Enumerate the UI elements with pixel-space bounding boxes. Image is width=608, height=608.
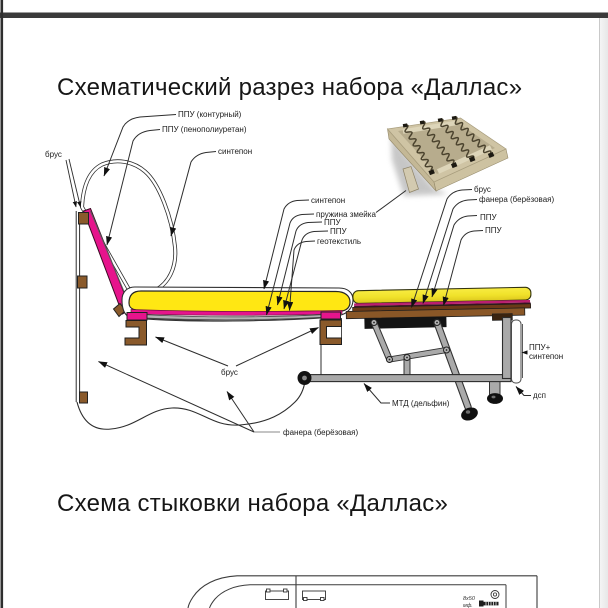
svg-text:МТД (дельфин): МТД (дельфин) <box>392 399 450 408</box>
svg-text:ППУ: ППУ <box>480 213 498 222</box>
svg-text:синтепон: синтепон <box>529 352 563 361</box>
svg-text:мф.: мф. <box>463 603 473 608</box>
svg-text:брус: брус <box>474 185 491 194</box>
svg-text:фанера (берёзовая): фанера (берёзовая) <box>283 428 358 437</box>
svg-text:8x50: 8x50 <box>463 596 476 602</box>
svg-text:ППУ: ППУ <box>485 226 503 235</box>
svg-text:Схема стыковки набора «Даллас»: Схема стыковки набора «Даллас» <box>57 490 448 517</box>
svg-text:ППУ: ППУ <box>324 218 342 227</box>
svg-text:ППУ+: ППУ+ <box>529 343 551 352</box>
svg-text:ППУ (контурный): ППУ (контурный) <box>178 110 242 119</box>
svg-text:дсп: дсп <box>533 391 546 400</box>
svg-text:синтепон: синтепон <box>218 147 252 156</box>
svg-text:ППУ (пенополиуретан): ППУ (пенополиуретан) <box>162 125 247 134</box>
svg-text:синтепон: синтепон <box>311 196 345 205</box>
svg-text:брус: брус <box>221 368 238 377</box>
svg-text:фанера (берёзовая): фанера (берёзовая) <box>479 195 554 204</box>
svg-text:ППУ: ППУ <box>330 227 348 236</box>
svg-text:геотекстиль: геотекстиль <box>317 237 361 246</box>
svg-text:Схематический разрез набора «Д: Схематический разрез набора «Даллас» <box>57 74 522 101</box>
svg-text:брус: брус <box>45 150 62 159</box>
